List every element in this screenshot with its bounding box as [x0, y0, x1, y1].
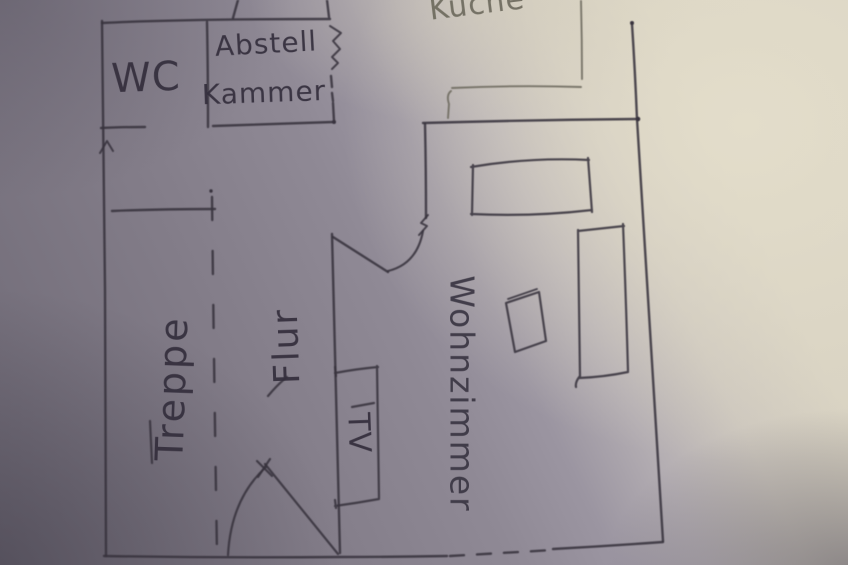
sideboard-outline — [471, 158, 592, 215]
bottom-wall-left — [104, 556, 447, 557]
top-tick-right — [327, 0, 329, 17]
wc-divider-wall — [207, 22, 208, 127]
wall-arrow-mark — [100, 141, 113, 153]
treppe-flur-dashed-divider — [212, 197, 217, 553]
entry-stub-wall — [425, 124, 426, 218]
diagonal-wall — [333, 237, 388, 272]
counter-left-edge — [448, 91, 451, 118]
room-label-treppe: Treppe — [150, 315, 193, 462]
livingroom-door-arc — [388, 231, 423, 271]
abstell-door-zigzag — [330, 26, 341, 69]
flur-entry-door — [228, 459, 338, 555]
right-wall — [632, 24, 663, 541]
divider-dot — [209, 189, 212, 192]
counter-right-edge — [581, 1, 582, 79]
door-leaf — [265, 464, 338, 554]
top-tick-left — [233, 0, 238, 18]
left-wall — [102, 21, 106, 556]
abstell-wall-dash — [331, 76, 332, 87]
top-wall — [102, 19, 330, 23]
floorplan-photo: WC Abstell Kammer Küche Treppe Flur TV W… — [0, 0, 848, 565]
room-label-flur: Flur — [268, 307, 307, 385]
livingroom-top-wall — [423, 119, 637, 123]
room-label-wohnzimmer: Wohnzimmer — [446, 275, 479, 512]
door-swing-arc — [228, 467, 266, 555]
table-outline — [506, 292, 546, 352]
room-label-abstellkammer-line2: Kammer — [201, 77, 326, 109]
bottom-wall-right — [553, 542, 663, 549]
treppe-top-line — [112, 209, 215, 211]
furniture — [335, 158, 628, 508]
room-label-wc: WC — [111, 57, 182, 99]
bottom-wall-dashed-opening — [450, 550, 553, 556]
tv-underline — [352, 403, 374, 407]
abstell-bottom-wall — [213, 122, 333, 126]
furniture-label-tv: TV — [342, 412, 373, 454]
abstell-wall-solid — [333, 103, 334, 121]
room-label-abstellkammer-line1: Abstell — [214, 27, 318, 60]
corner-dot — [630, 21, 634, 25]
wc-bottom-wall — [101, 127, 145, 128]
counter-front-edge — [452, 86, 581, 88]
corner-dot — [332, 120, 336, 124]
abstell-wall-dash — [332, 93, 333, 101]
sofa-outline — [576, 224, 628, 387]
